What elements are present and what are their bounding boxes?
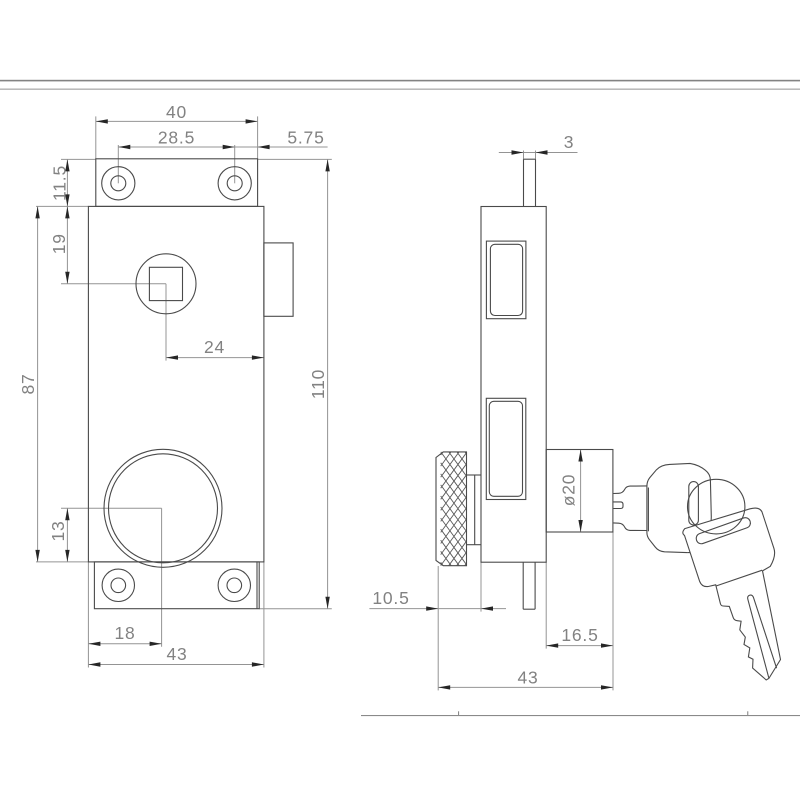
svg-text:40: 40 bbox=[166, 102, 187, 122]
svg-text:11.5: 11.5 bbox=[50, 165, 70, 201]
svg-text:19: 19 bbox=[49, 233, 69, 254]
svg-text:43: 43 bbox=[166, 644, 187, 664]
svg-text:13: 13 bbox=[48, 520, 68, 541]
svg-text:16.5: 16.5 bbox=[561, 625, 598, 645]
svg-text:10.5: 10.5 bbox=[372, 588, 409, 608]
svg-text:3: 3 bbox=[564, 132, 575, 152]
svg-text:28.5: 28.5 bbox=[158, 128, 195, 148]
svg-text:43: 43 bbox=[517, 668, 538, 688]
svg-text:5.75: 5.75 bbox=[287, 128, 324, 148]
svg-text:110: 110 bbox=[308, 369, 328, 399]
svg-text:18: 18 bbox=[114, 623, 135, 643]
svg-text:ø20: ø20 bbox=[559, 474, 579, 507]
svg-text:87: 87 bbox=[18, 373, 38, 394]
svg-text:24: 24 bbox=[204, 337, 225, 357]
